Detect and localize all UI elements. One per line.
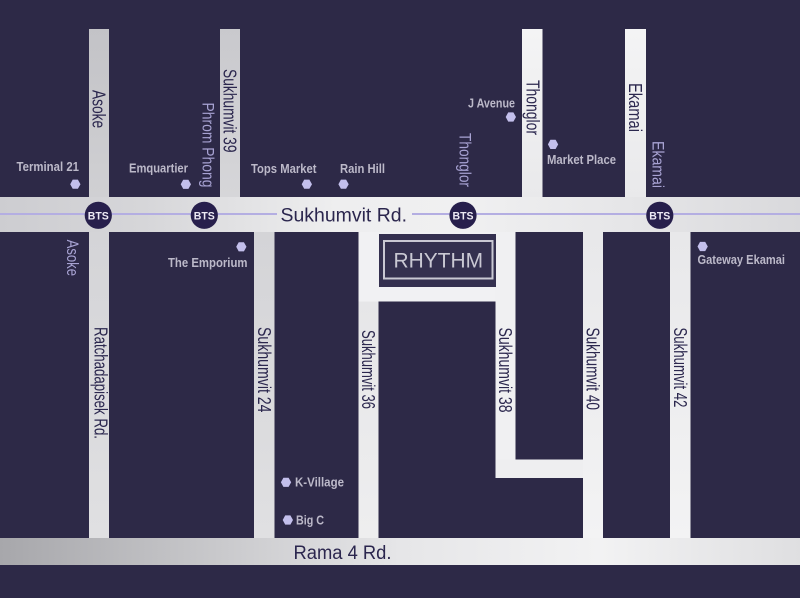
svg-text:Rain Hill: Rain Hill bbox=[340, 162, 385, 176]
svg-text:J Avenue: J Avenue bbox=[468, 97, 515, 111]
svg-text:RHYTHM: RHYTHM bbox=[394, 250, 484, 273]
svg-text:Sukhumvit 42: Sukhumvit 42 bbox=[670, 328, 690, 408]
svg-text:BTS: BTS bbox=[194, 211, 215, 223]
svg-text:Sukhumvit Rd.: Sukhumvit Rd. bbox=[281, 205, 408, 227]
svg-text:Sukhumvit 40: Sukhumvit 40 bbox=[583, 328, 603, 411]
svg-text:Tops Market: Tops Market bbox=[251, 162, 317, 176]
svg-text:Ekamai: Ekamai bbox=[625, 83, 645, 132]
svg-text:Phrom Phong: Phrom Phong bbox=[199, 103, 218, 188]
svg-text:Ekamai: Ekamai bbox=[648, 141, 667, 188]
svg-text:Asoke: Asoke bbox=[89, 90, 109, 128]
svg-text:Emquartier: Emquartier bbox=[129, 162, 188, 176]
svg-text:Terminal 21: Terminal 21 bbox=[17, 160, 80, 174]
svg-text:BTS: BTS bbox=[88, 211, 109, 223]
svg-text:BTS: BTS bbox=[649, 211, 670, 223]
svg-text:BTS: BTS bbox=[453, 211, 474, 223]
svg-text:Sukhumvit 24: Sukhumvit 24 bbox=[254, 327, 274, 413]
svg-text:Gateway Ekamai: Gateway Ekamai bbox=[698, 253, 786, 267]
svg-text:Ratchadapisek Rd.: Ratchadapisek Rd. bbox=[91, 327, 111, 439]
svg-text:Market Place: Market Place bbox=[547, 153, 616, 167]
svg-text:Big C: Big C bbox=[296, 514, 324, 528]
svg-text:Sukhumvit 38: Sukhumvit 38 bbox=[495, 328, 515, 413]
svg-text:Rama 4 Rd.: Rama 4 Rd. bbox=[294, 543, 392, 564]
svg-text:Asoke: Asoke bbox=[63, 240, 82, 276]
svg-text:Sukhumvit 36: Sukhumvit 36 bbox=[358, 330, 378, 409]
svg-text:Thonglor: Thonglor bbox=[456, 133, 475, 187]
svg-text:Thonglor: Thonglor bbox=[523, 80, 543, 135]
svg-text:K-Village: K-Village bbox=[295, 476, 344, 490]
svg-text:Sukhumvit 39: Sukhumvit 39 bbox=[220, 69, 240, 153]
svg-text:The Emporium: The Emporium bbox=[168, 256, 248, 270]
